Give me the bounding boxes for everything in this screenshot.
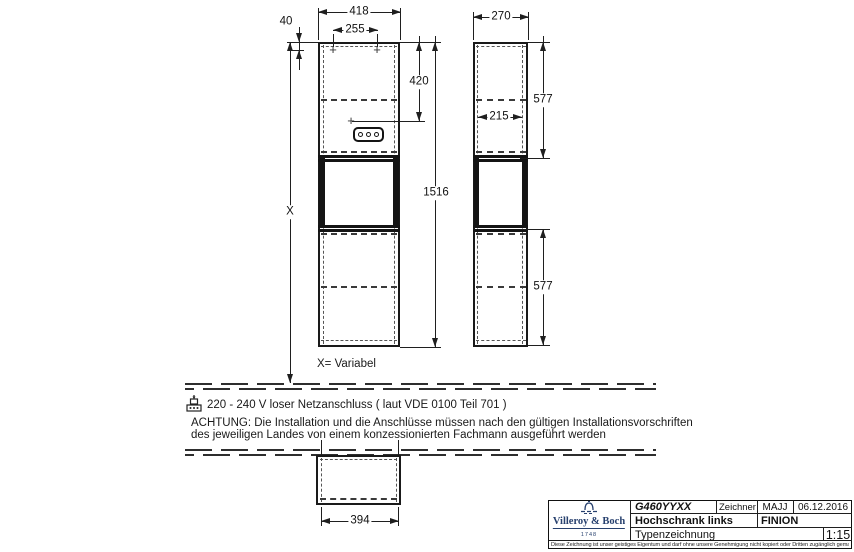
drawing-line bbox=[476, 286, 526, 288]
dim-section-upper: 577 bbox=[531, 93, 554, 107]
drawing-line bbox=[823, 527, 824, 540]
drawing-line bbox=[287, 42, 293, 51]
brand-logo-icon bbox=[578, 501, 600, 515]
drawing-line bbox=[321, 340, 397, 341]
drawing-line bbox=[473, 42, 528, 347]
drawing-line bbox=[358, 132, 363, 137]
dim-side-depth: 270 bbox=[489, 10, 512, 24]
drawing-line bbox=[392, 9, 401, 15]
dim-side-inner-depth: 215 bbox=[487, 110, 510, 124]
drawing-line bbox=[321, 458, 322, 502]
dim-front-inner-width: 255 bbox=[343, 23, 366, 37]
drawing-line bbox=[321, 440, 322, 455]
drawing-line bbox=[630, 513, 852, 514]
drawing-line bbox=[377, 34, 378, 47]
drawing-line bbox=[476, 151, 526, 153]
drawing-line bbox=[476, 340, 526, 341]
drawing-line bbox=[432, 42, 438, 51]
product-name: Hochschrank links bbox=[635, 516, 733, 527]
drawing-line bbox=[321, 233, 397, 235]
drawing-line bbox=[320, 459, 397, 460]
scale-value: 1:15 bbox=[826, 529, 850, 542]
drawing-line bbox=[630, 527, 852, 528]
wall-section-line bbox=[185, 383, 656, 391]
drawing-line bbox=[390, 518, 399, 524]
drawing-line bbox=[321, 286, 397, 288]
doc-type: Typenzeichnung bbox=[635, 530, 715, 541]
dim-height-variable: X bbox=[284, 205, 296, 219]
dim-section-lower: 577 bbox=[531, 280, 554, 294]
drawing-line bbox=[473, 14, 482, 20]
drawing-line bbox=[333, 34, 334, 47]
drawing-line bbox=[757, 500, 758, 527]
plug-icon bbox=[186, 395, 204, 412]
drawing-line bbox=[540, 149, 546, 158]
dim-front-width: 418 bbox=[347, 5, 370, 19]
drawing-line bbox=[333, 27, 342, 33]
drawing-line bbox=[432, 338, 438, 347]
dim-top-offset: 40 bbox=[280, 16, 293, 28]
drawing-line bbox=[320, 498, 397, 500]
drawing-line bbox=[321, 518, 330, 524]
drawing-line bbox=[520, 158, 550, 159]
drawing-line bbox=[476, 46, 526, 47]
drawing-line bbox=[393, 158, 399, 228]
drawing-line bbox=[318, 9, 327, 15]
article-number: G460YYXX bbox=[635, 502, 691, 513]
drawing-line bbox=[540, 336, 546, 345]
drawing-line bbox=[398, 440, 399, 455]
drawing-line bbox=[476, 233, 526, 235]
power-note: 220 - 240 V loser Netzanschluss ( laut V… bbox=[207, 399, 507, 411]
drawing-line bbox=[528, 42, 550, 43]
dim-bottom-width: 394 bbox=[348, 514, 371, 528]
drawing-line bbox=[474, 158, 479, 228]
drawing-line bbox=[318, 225, 400, 232]
drawing-line bbox=[319, 158, 325, 228]
variable-note: X= Variabel bbox=[317, 358, 376, 370]
drawing-line bbox=[630, 500, 631, 540]
drawing-line bbox=[296, 33, 302, 42]
warning-note-line1: ACHTUNG: Die Installation und die Anschl… bbox=[191, 417, 693, 429]
drafter-value: MAJJ bbox=[763, 503, 788, 513]
socket-icon bbox=[353, 127, 384, 142]
date-value: 06.12.2016 bbox=[798, 503, 848, 513]
drawing-line bbox=[416, 42, 422, 51]
drawing-line bbox=[520, 14, 529, 20]
drawing-line bbox=[400, 347, 441, 348]
drawing-line bbox=[513, 114, 522, 120]
drawing-line bbox=[287, 374, 293, 383]
drawing-line bbox=[540, 229, 546, 238]
drawing-line bbox=[528, 345, 550, 346]
type-drawing-sheet: + + + 418 255 40 X bbox=[0, 0, 854, 552]
drawing-line bbox=[352, 121, 425, 122]
drawing-line bbox=[416, 112, 422, 121]
drawing-line bbox=[366, 132, 371, 137]
drafter-label: Zeichner bbox=[719, 503, 756, 513]
drawing-line bbox=[296, 50, 302, 59]
series-name: FINION bbox=[761, 516, 798, 527]
drawing-line bbox=[522, 158, 527, 228]
drawing-line bbox=[318, 155, 400, 162]
drawing-line bbox=[476, 99, 526, 101]
disclaimer-text: Diese Zeichnung ist unser geistiges Eige… bbox=[551, 542, 849, 548]
drawing-line bbox=[318, 42, 400, 347]
dim-body-height: 1516 bbox=[421, 186, 451, 200]
dim-socket-height: 420 bbox=[407, 75, 430, 89]
drawing-line bbox=[369, 27, 378, 33]
drawing-line bbox=[321, 151, 397, 153]
wall-section-line bbox=[185, 449, 656, 457]
brand-name: Villeroy & Boch bbox=[553, 516, 625, 529]
brand-year: 1748 bbox=[581, 532, 597, 538]
drawing-line bbox=[374, 132, 379, 137]
drawing-line bbox=[540, 42, 546, 51]
drawing-line bbox=[716, 500, 717, 513]
drawing-line bbox=[321, 99, 397, 101]
drawing-line bbox=[396, 458, 397, 502]
drawing-line bbox=[478, 114, 487, 120]
drawing-line bbox=[793, 500, 794, 513]
